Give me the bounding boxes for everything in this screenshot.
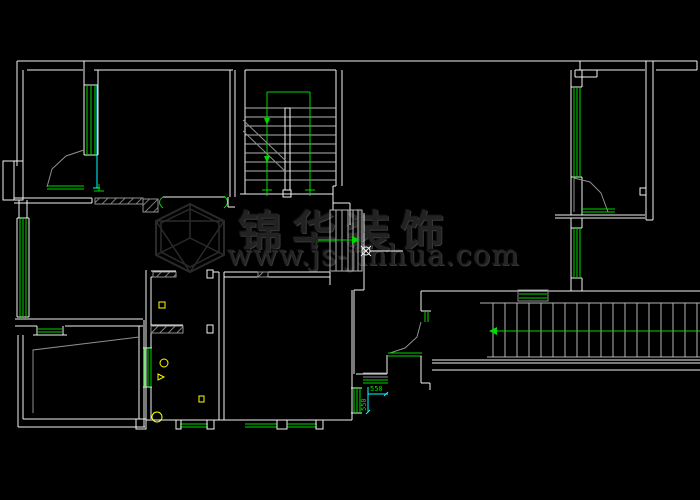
floor-plan-svg	[0, 0, 700, 500]
cad-drawing-canvas[interactable]: 锦华装饰 www.js-jinhua.com 550 550	[0, 0, 700, 500]
dimension-text-vertical: 550	[361, 398, 368, 411]
stair-break-line	[243, 131, 286, 172]
room-inner-outline	[33, 337, 139, 413]
door-jamb-arc	[160, 197, 164, 208]
stair-direction-arrow	[352, 236, 360, 244]
door-swing-arc	[47, 150, 84, 187]
fixture-symbol	[199, 396, 204, 402]
fixture-symbol	[158, 374, 164, 380]
wall-notch	[640, 188, 646, 195]
door-swing-arc	[390, 322, 421, 353]
dimension-text-horizontal: 550	[370, 386, 383, 393]
fixture-symbol	[159, 302, 165, 308]
wall-pier	[207, 420, 214, 429]
door-jamb-arc	[224, 196, 228, 208]
hatched-wall	[258, 272, 268, 277]
stair-direction-arrow	[264, 118, 270, 125]
wall-pier	[277, 420, 287, 429]
wall-pier	[3, 161, 23, 200]
hatched-wall	[153, 272, 176, 277]
hatched-wall	[151, 326, 183, 333]
hatched-wall	[143, 199, 158, 212]
door-swing-arc	[574, 178, 608, 212]
fixture-symbol	[160, 359, 168, 367]
wall-pier	[207, 270, 213, 278]
window-box	[518, 290, 548, 301]
wall-pier	[316, 420, 323, 429]
wall-pier	[207, 325, 213, 333]
hatched-wall	[95, 198, 143, 204]
